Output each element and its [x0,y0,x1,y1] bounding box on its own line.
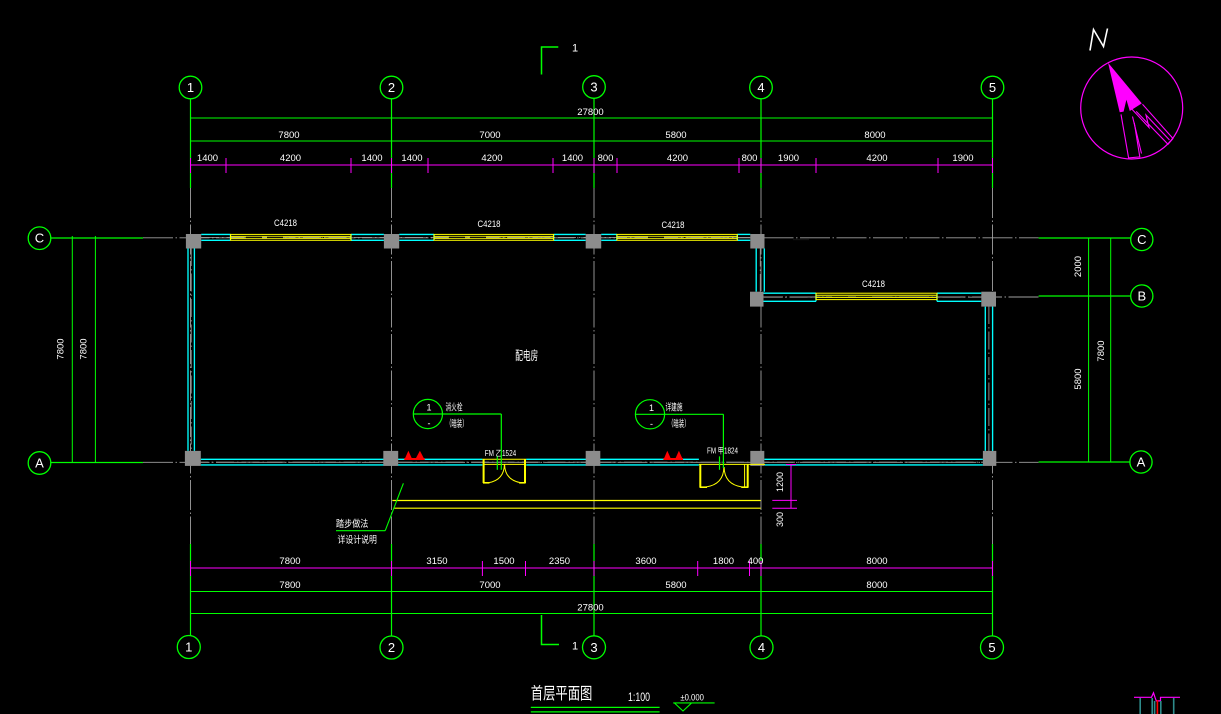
svg-text:3: 3 [590,80,597,95]
svg-text:B: B [1137,289,1146,304]
svg-text:1500: 1500 [493,556,514,567]
svg-text:4: 4 [757,80,764,95]
svg-text:1: 1 [649,403,654,413]
svg-text:7800: 7800 [279,580,300,591]
svg-text:8000: 8000 [866,580,887,591]
svg-text:400: 400 [748,556,764,567]
svg-text:800: 800 [598,153,614,164]
svg-text:C: C [35,231,44,246]
svg-text:1400: 1400 [401,153,422,164]
svg-text:-: - [428,419,431,429]
svg-text:4200: 4200 [280,153,301,164]
svg-text:1900: 1900 [952,153,973,164]
svg-text:1:100: 1:100 [628,692,650,704]
svg-text:7000: 7000 [479,580,500,591]
svg-text:7800: 7800 [1096,340,1107,361]
svg-text:2350: 2350 [549,556,570,567]
svg-text:1: 1 [426,403,431,413]
svg-text:5800: 5800 [665,130,686,141]
svg-text:消火栓: 消火栓 [446,402,463,414]
svg-text:4200: 4200 [866,153,887,164]
svg-text:±0.000: ±0.000 [680,693,704,704]
svg-text:-: - [650,419,653,429]
svg-text:5: 5 [988,640,995,655]
svg-text:FM 甲1824: FM 甲1824 [707,447,738,456]
svg-text:1400: 1400 [197,153,218,164]
svg-text:2: 2 [388,640,395,655]
svg-text:1: 1 [185,640,192,655]
svg-text:3: 3 [590,640,597,655]
svg-text:详设计说明: 详设计说明 [338,534,377,546]
svg-text:7000: 7000 [479,130,500,141]
svg-text:1: 1 [572,43,578,55]
svg-text:2: 2 [388,80,395,95]
svg-text:C: C [1137,232,1146,247]
svg-text:27800: 27800 [577,107,603,118]
svg-text:C4218: C4218 [862,279,885,289]
svg-text:配电房: 配电房 [515,348,538,363]
svg-text:27800: 27800 [577,603,603,614]
svg-text:踏步做法: 踏步做法 [336,518,368,530]
svg-text:8000: 8000 [866,556,887,567]
svg-text:A: A [35,456,44,471]
svg-text:1800: 1800 [713,556,734,567]
svg-text:4200: 4200 [667,153,688,164]
svg-text:800: 800 [742,153,758,164]
svg-text:1: 1 [572,641,578,653]
svg-text:（暗装）: （暗装） [446,418,468,430]
svg-text:3600: 3600 [635,556,656,567]
svg-text:1900: 1900 [778,153,799,164]
svg-text:首层平面图: 首层平面图 [531,684,593,703]
svg-text:1: 1 [187,80,194,95]
svg-text:7800: 7800 [278,130,299,141]
svg-text:1200: 1200 [775,472,785,492]
svg-text:7800: 7800 [56,338,67,359]
svg-text:5: 5 [989,80,996,95]
svg-text:1400: 1400 [361,153,382,164]
svg-text:C4218: C4218 [662,220,685,230]
svg-text:FM 乙1524: FM 乙1524 [485,449,517,458]
svg-text:5800: 5800 [665,580,686,591]
svg-text:300: 300 [775,512,785,527]
svg-text:4200: 4200 [481,153,502,164]
svg-text:4: 4 [758,640,765,655]
svg-text:7800: 7800 [279,556,300,567]
svg-text:C4218: C4218 [274,218,297,228]
svg-text:C4218: C4218 [478,219,501,229]
svg-text:A: A [1137,455,1146,470]
svg-text:2000: 2000 [1073,256,1084,277]
svg-text:7800: 7800 [79,338,90,359]
svg-text:3150: 3150 [426,556,447,567]
svg-text:1400: 1400 [562,153,583,164]
svg-text:（暗装）: （暗装） [668,418,690,430]
svg-text:详建施: 详建施 [666,402,683,414]
svg-text:5800: 5800 [1073,368,1084,389]
svg-text:8000: 8000 [864,130,885,141]
